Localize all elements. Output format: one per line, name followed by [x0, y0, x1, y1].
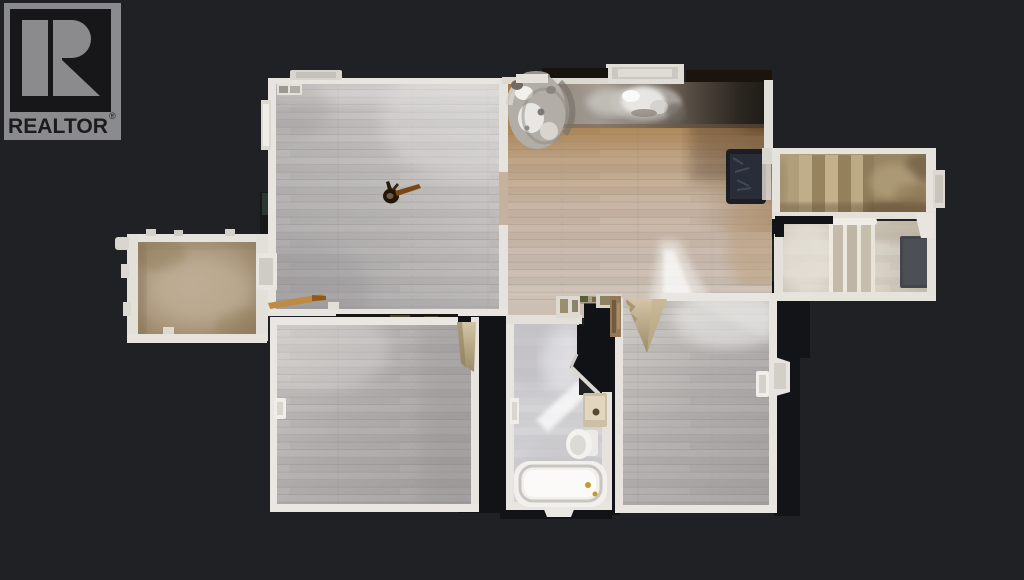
svg-text:REALTOR: REALTOR — [8, 115, 108, 138]
svg-text:®: ® — [109, 111, 116, 121]
